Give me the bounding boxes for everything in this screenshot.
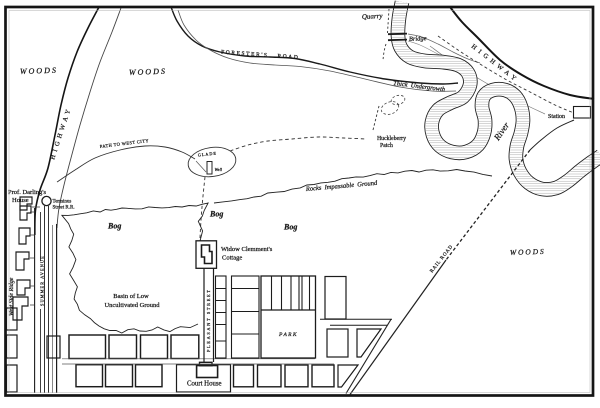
svg-text:West Side Ridge: West Side Ridge	[9, 277, 15, 316]
svg-text:SUMMER AVENUE: SUMMER AVENUE	[40, 255, 45, 306]
svg-text:Quarry: Quarry	[362, 12, 384, 21]
svg-text:Station: Station	[548, 114, 565, 120]
svg-text:House: House	[12, 197, 29, 204]
svg-text:Street R.R.: Street R.R.	[53, 206, 75, 211]
svg-text:Terminus: Terminus	[53, 200, 72, 205]
svg-text:Patch: Patch	[380, 143, 393, 149]
svg-text:Widow Clemment's: Widow Clemment's	[221, 246, 273, 253]
svg-text:Cottage: Cottage	[222, 255, 242, 262]
svg-text:W O O D S: W O O D S	[129, 67, 165, 77]
svg-text:Basin of Low: Basin of Low	[113, 293, 149, 300]
svg-text:Uncultivated Ground: Uncultivated Ground	[104, 302, 160, 309]
svg-text:W O O D S: W O O D S	[20, 66, 56, 76]
svg-text:W O O D S: W O O D S	[510, 247, 544, 257]
svg-text:Bog: Bog	[209, 210, 223, 219]
svg-text:Bog: Bog	[107, 222, 121, 231]
svg-text:Court House: Court House	[187, 381, 222, 388]
svg-text:P A R K: P A R K	[278, 332, 297, 338]
svg-text:Prof. Darling's: Prof. Darling's	[8, 189, 46, 196]
svg-text:Bog: Bog	[283, 223, 297, 232]
svg-text:Bridge: Bridge	[409, 35, 427, 43]
svg-text:Well: Well	[215, 167, 223, 172]
svg-text:Huckleberry: Huckleberry	[377, 136, 406, 142]
svg-text:PLEASANT STREET: PLEASANT STREET	[206, 288, 211, 352]
